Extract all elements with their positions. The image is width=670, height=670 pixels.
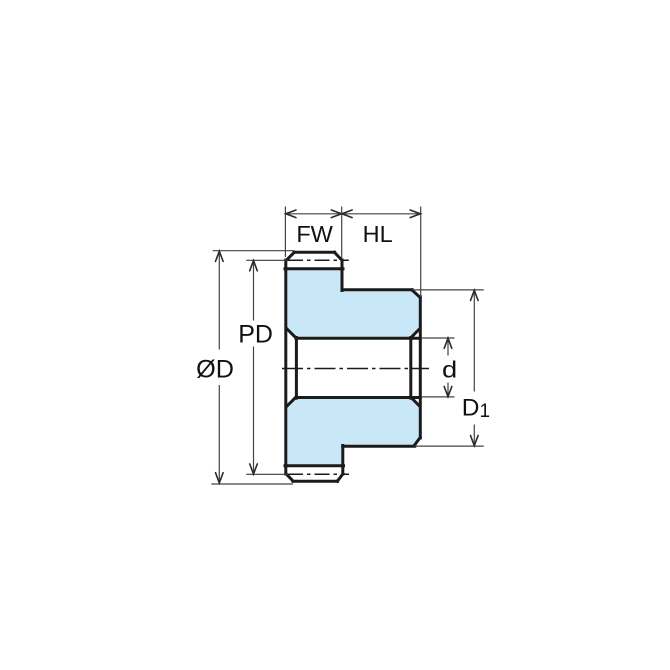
svg-text:HL: HL	[363, 221, 393, 247]
svg-text:FW: FW	[296, 221, 333, 247]
svg-text:ØD: ØD	[196, 356, 234, 384]
svg-text:PD: PD	[238, 320, 273, 348]
svg-text:d: d	[442, 357, 457, 383]
